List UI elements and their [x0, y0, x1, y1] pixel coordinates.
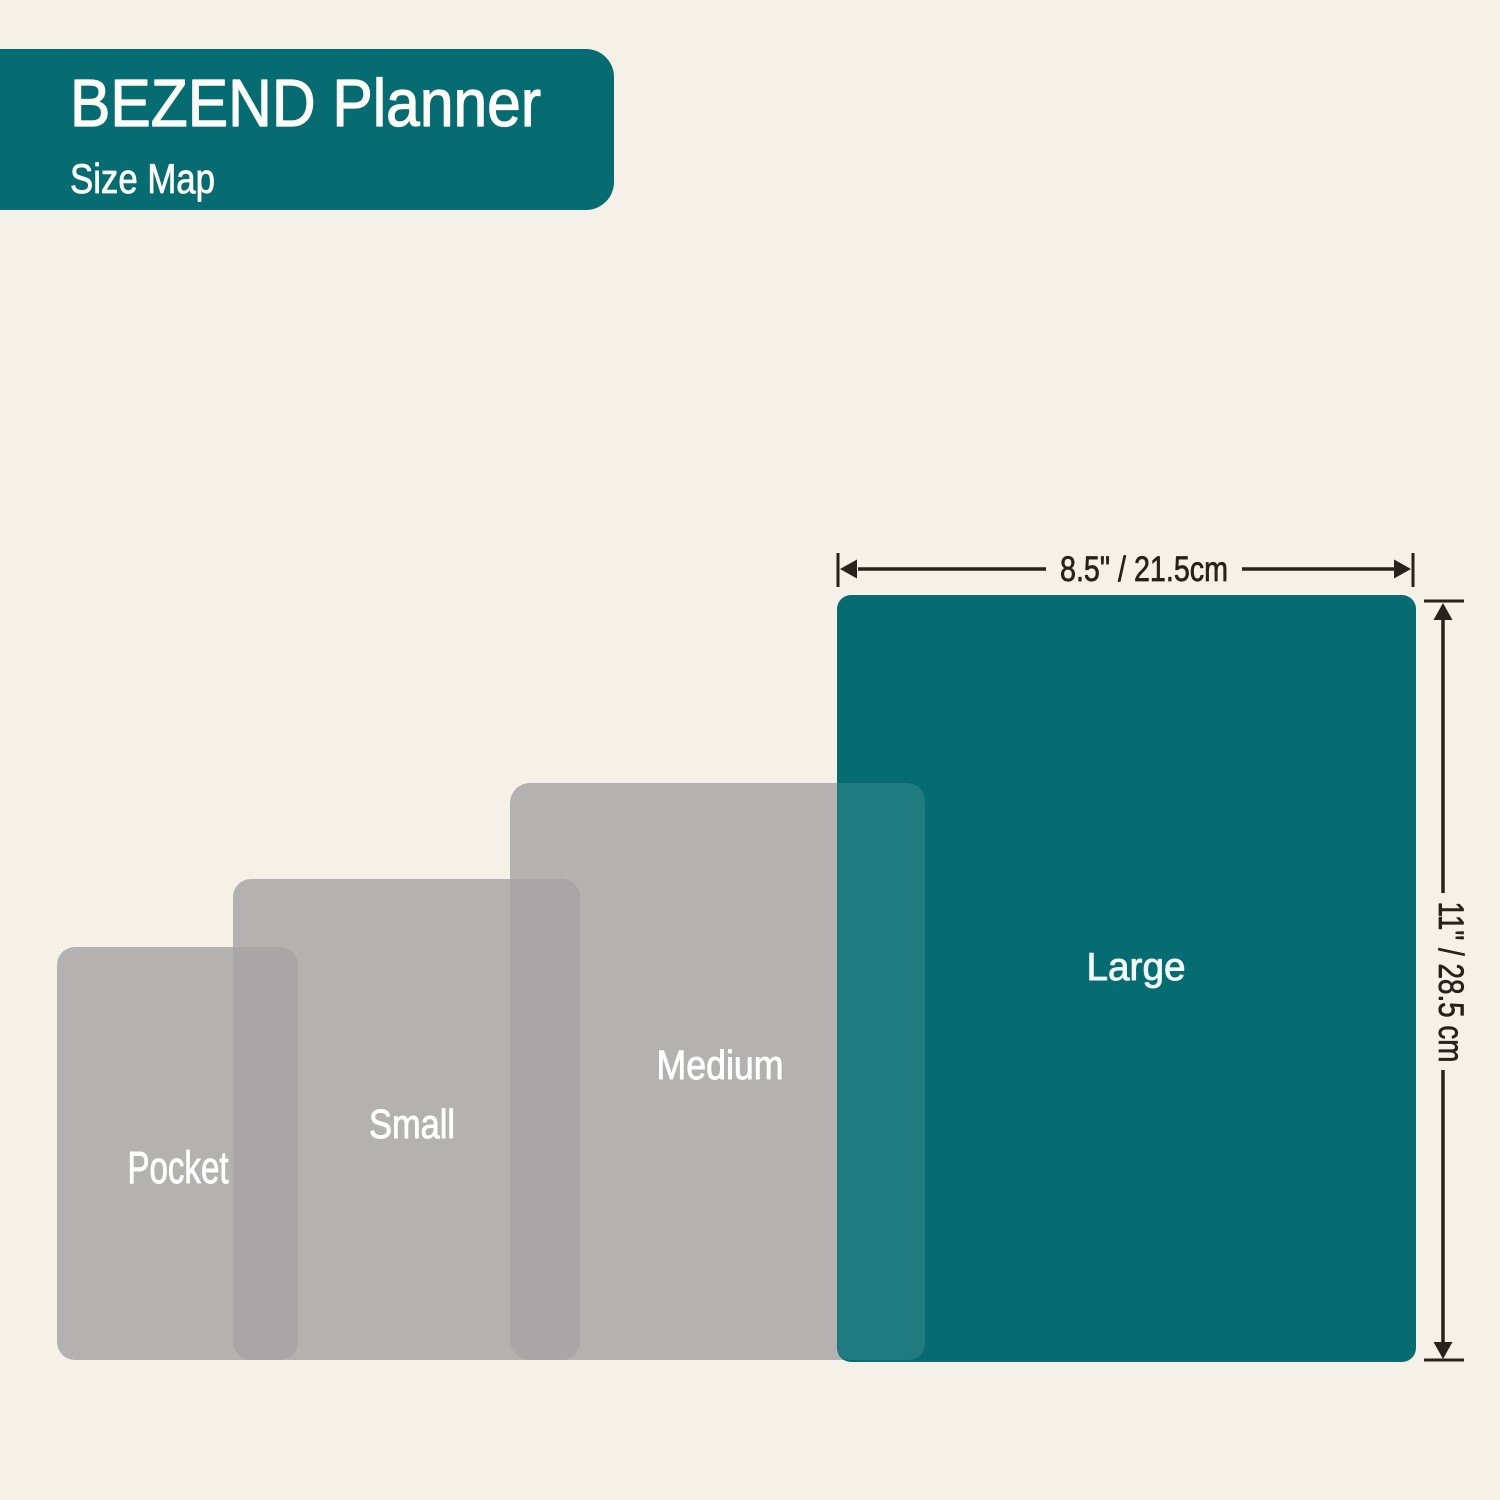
svg-text:Medium: Medium	[657, 1042, 784, 1088]
svg-text:BEZEND Planner: BEZEND Planner	[70, 66, 541, 141]
svg-text:Large: Large	[1087, 946, 1186, 989]
svg-text:Small: Small	[369, 1101, 455, 1147]
svg-text:8.5" / 21.5cm: 8.5" / 21.5cm	[1060, 550, 1228, 589]
svg-text:11" / 28.5 cm: 11" / 28.5 cm	[1431, 902, 1470, 1063]
svg-text:Pocket: Pocket	[128, 1142, 229, 1193]
svg-text:Size Map: Size Map	[70, 155, 215, 202]
